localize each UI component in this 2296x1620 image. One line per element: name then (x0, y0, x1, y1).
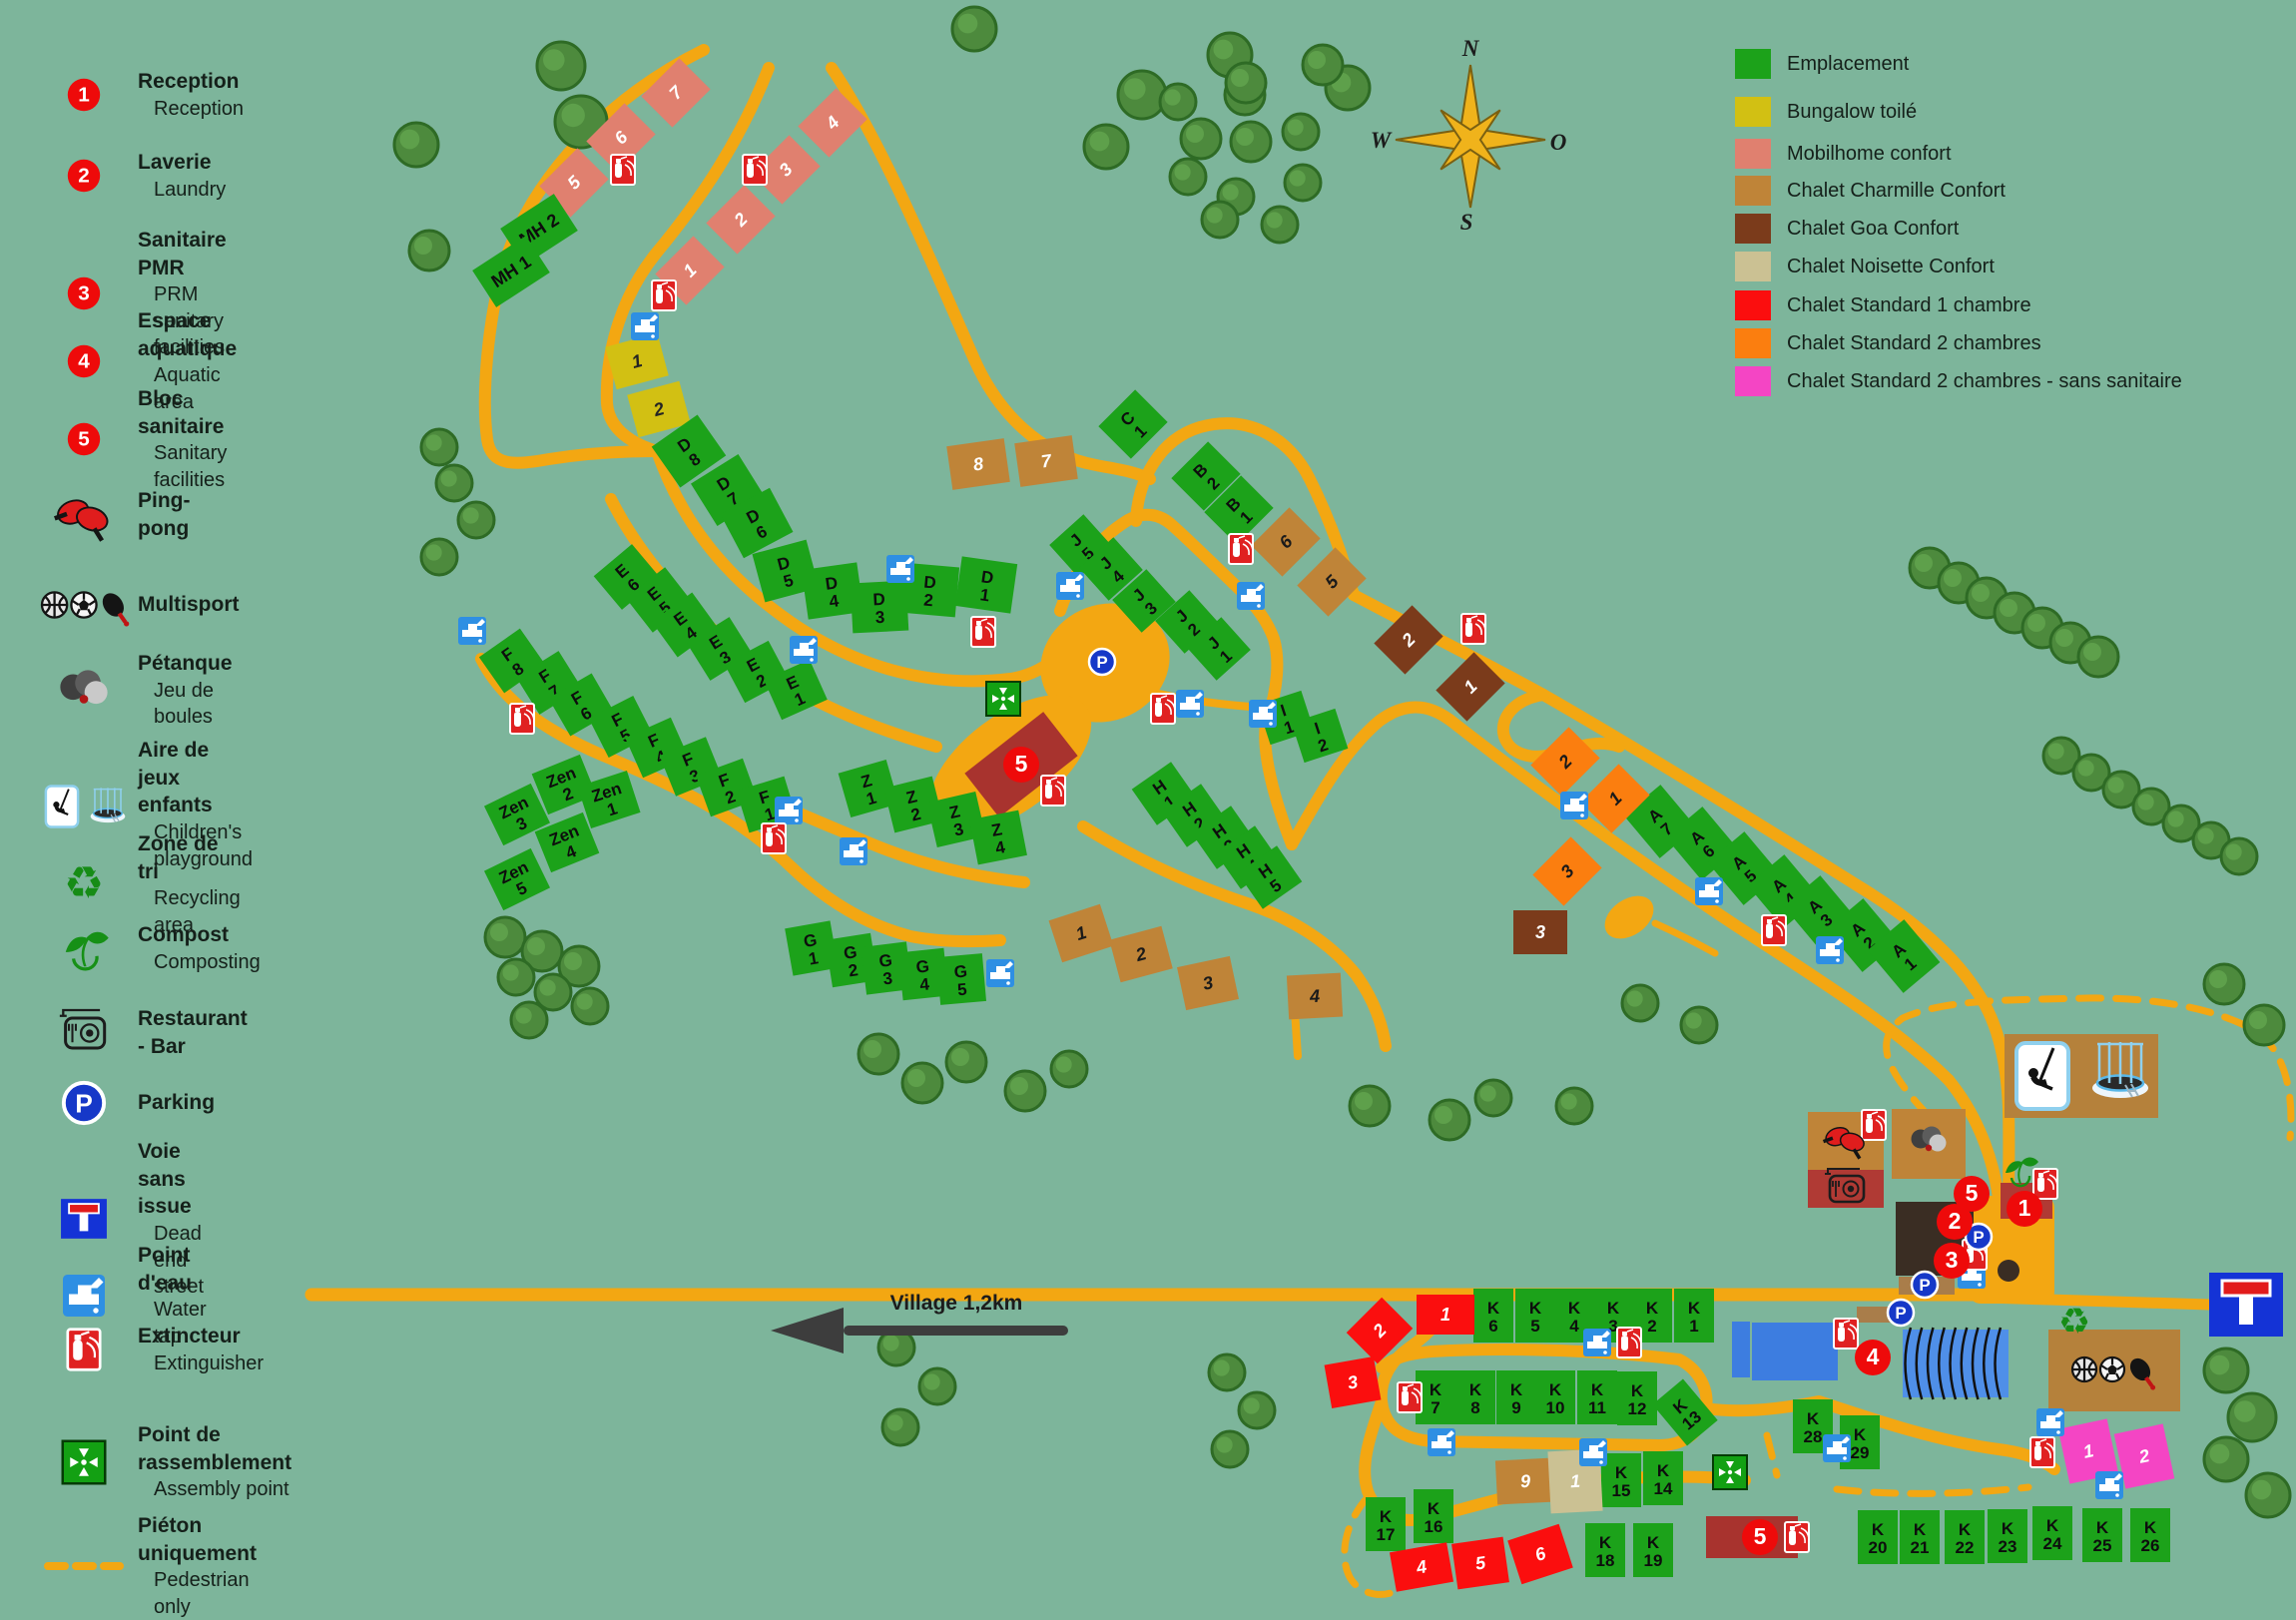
swing-icon (2016, 1043, 2068, 1109)
legend-title: Restaurant - Bar (138, 1007, 248, 1058)
playground-icon (30, 776, 138, 833)
tree-highlight (1561, 1093, 1577, 1109)
watertap-icon (2036, 1408, 2064, 1436)
legend-item-chalet-standard-2-chambres-sans-sanitaire: Chalet Standard 2 chambres - sans sanita… (1735, 366, 2182, 396)
plot-K23: K23 (1988, 1509, 2027, 1563)
legend-subtitle: Laundry (138, 177, 226, 203)
tree-highlight (924, 1373, 940, 1389)
ext-icon (1398, 1382, 1422, 1412)
legend-title: Point de rassemblement (138, 1423, 291, 1474)
tree-highlight (2226, 843, 2242, 859)
legend-title: Zone de tri (138, 832, 219, 883)
plot-3: 3 (1325, 1356, 1382, 1408)
tree-highlight (1207, 207, 1223, 223)
circle-icon: 5 (1742, 1519, 1778, 1555)
ext-icon (1229, 534, 1253, 564)
plot-K18: K18 (1585, 1523, 1625, 1577)
ext-icon (1617, 1328, 1641, 1357)
legend-label: Emplacement (1787, 53, 1909, 76)
watertap-icon (886, 555, 914, 583)
tree-highlight (1244, 1397, 1260, 1413)
assembly-icon (1713, 1455, 1747, 1489)
deadend-icon (30, 1190, 138, 1248)
dashedline-icon (30, 1537, 138, 1595)
tree-highlight (1010, 1077, 1028, 1095)
ext-icon (971, 617, 995, 647)
tree-highlight (2249, 1011, 2267, 1029)
ext-icon (1862, 1110, 1886, 1140)
svg-text:5: 5 (78, 427, 90, 450)
svg-text:2: 2 (78, 164, 90, 187)
svg-text:1: 1 (1440, 1305, 1450, 1325)
tree-highlight (564, 952, 582, 970)
number-1-icon: 1 (30, 66, 138, 124)
plot-K8: K8 (1455, 1370, 1495, 1424)
legend-label: Chalet Standard 2 chambres (1787, 332, 2041, 355)
tree-highlight (543, 49, 565, 71)
number-2-icon: 2 (30, 147, 138, 205)
plot-K25: K25 (2082, 1508, 2122, 1562)
legend-item-ping-pong: Ping-pong (30, 486, 191, 544)
legend-item-mobilhome-confort: Mobilhome confort (1735, 139, 1952, 169)
color-swatch (1735, 214, 1771, 244)
ext-icon (1785, 1522, 1809, 1552)
ext-icon (2030, 1437, 2054, 1467)
tree-highlight (2108, 777, 2124, 793)
tree-highlight (907, 1069, 925, 1087)
svg-text:W: W (1371, 128, 1393, 153)
color-swatch (1735, 49, 1771, 79)
pingpong-icon (30, 486, 138, 544)
tree-highlight (2000, 599, 2017, 617)
tree-highlight (441, 470, 457, 486)
legend-item-p-tanque: PétanqueJeu de boules (30, 650, 233, 731)
legend-item-restaurant-bar: Restaurant - Bar (30, 1004, 248, 1062)
legend-item-parking: PParking (30, 1074, 215, 1132)
tree-highlight (863, 1040, 881, 1058)
plot-Z4: Z4 (969, 810, 1027, 865)
ext-icon (743, 155, 767, 185)
legend-item-pi-ton-uniquement: Piéton uniquementPedestrian only (30, 1512, 257, 1620)
tree-highlight (1944, 569, 1962, 587)
watertap-icon (1583, 1329, 1611, 1356)
legend-label: Chalet Standard 1 chambre (1787, 294, 2031, 317)
tree-highlight (1972, 584, 1990, 602)
pcircle-icon: P (1912, 1272, 1938, 1298)
tree-highlight (1686, 1012, 1702, 1028)
legend-title: Laverie (138, 151, 212, 174)
svg-text:O: O (1550, 130, 1567, 155)
tree-highlight (490, 923, 508, 941)
watertap-icon (1176, 690, 1204, 718)
tree-highlight (2078, 760, 2094, 776)
tree-highlight (2168, 810, 2184, 826)
watertap-icon (1695, 877, 1723, 905)
svg-text:P: P (1895, 1304, 1906, 1323)
plot-K19: K19 (1633, 1523, 1673, 1577)
plot-K22: K22 (1945, 1510, 1985, 1564)
plot-K20: K20 (1858, 1510, 1898, 1564)
tree-highlight (2198, 827, 2214, 843)
ext-icon (1762, 915, 1786, 945)
watertap-icon (1816, 936, 1844, 964)
tree-highlight (527, 937, 545, 955)
tree-highlight (577, 993, 593, 1009)
legend-title: Reception (138, 70, 240, 93)
plot-K9: K9 (1496, 1370, 1536, 1424)
tree-highlight (503, 964, 519, 980)
color-swatch (1735, 252, 1771, 281)
watertap-icon (631, 312, 659, 340)
legend-label: Mobilhome confort (1787, 143, 1952, 166)
svg-text:4: 4 (1308, 986, 1320, 1007)
legend-item-point-de-rassemblement: Point de rassemblementAssembly point (30, 1421, 291, 1503)
petanque-icon (30, 661, 138, 719)
dot-icon (1998, 1260, 2019, 1282)
svg-text:S: S (1460, 210, 1473, 235)
plot-K11: K11 (1577, 1370, 1617, 1424)
legend-subtitle: Composting (138, 949, 261, 975)
tree-highlight (516, 1007, 532, 1023)
circle-icon: 1 (2007, 1191, 2042, 1227)
campground-map: 7654321MH 2MH 112D8D7D6D5D4D3D2D1E6E5E4E… (0, 0, 2296, 1620)
plot-7: 7 (1014, 435, 1078, 487)
pcircle-icon: P (1089, 649, 1115, 675)
tree-highlight (1915, 554, 1933, 572)
number-4-icon: 4 (30, 332, 138, 390)
svg-text:3: 3 (1535, 922, 1545, 942)
legend-label: Bungalow toilé (1787, 101, 1917, 124)
tree-highlight (1175, 164, 1191, 180)
ext-icon (762, 823, 786, 853)
tree-highlight (400, 130, 420, 150)
tree-highlight (958, 14, 978, 34)
building (1752, 1323, 1838, 1380)
svg-text:1: 1 (2018, 1195, 2031, 1221)
watertap-icon (30, 1267, 138, 1325)
svg-text:3: 3 (1946, 1247, 1959, 1273)
legend-item-bungalow-toil: Bungalow toilé (1735, 97, 1917, 127)
watertap-icon (2095, 1471, 2123, 1499)
svg-text:P: P (1096, 653, 1107, 672)
assembly-icon (30, 1433, 138, 1491)
ext-icon (1041, 776, 1065, 806)
tree-highlight (1165, 89, 1181, 105)
plot-K16: K16 (1414, 1489, 1453, 1543)
legend-item-chalet-goa-confort: Chalet Goa Confort (1735, 214, 1959, 244)
watertap-icon (1237, 582, 1265, 610)
plot-K26: K26 (2130, 1508, 2170, 1562)
legend-title: Bloc sanitaire (138, 387, 224, 438)
tree-highlight (1480, 1085, 1496, 1101)
legend-item-multisport: Multisport (30, 576, 239, 634)
svg-text:N: N (1461, 36, 1480, 61)
plot-K10: K10 (1535, 1370, 1575, 1424)
svg-text:4: 4 (78, 349, 90, 372)
legend-subtitle: Jeu de boules (138, 678, 233, 731)
village-label: Village 1,2km (890, 1292, 1023, 1315)
ext-icon (30, 1321, 138, 1378)
watertap-icon (775, 797, 803, 824)
tree-highlight (1308, 51, 1326, 69)
circle-icon: 4 (1855, 1340, 1891, 1375)
tree-highlight (2234, 1400, 2256, 1422)
tree-highlight (540, 979, 556, 995)
tree-highlight (1090, 132, 1110, 152)
ext-icon (611, 155, 635, 185)
legend-item-chalet-noisette-confort: Chalet Noisette Confort (1735, 252, 1995, 281)
legend-subtitle: Pedestrian only (138, 1567, 257, 1620)
pcircle-icon: P (30, 1074, 138, 1132)
plot-K24: K24 (2032, 1506, 2072, 1560)
tree-highlight (887, 1414, 903, 1430)
tree-highlight (1223, 184, 1239, 200)
plot-K5: K5 (1515, 1289, 1555, 1343)
watertap-icon (1823, 1434, 1851, 1462)
tree-highlight (883, 1335, 899, 1350)
circle-icon: 3 (1934, 1243, 1970, 1279)
circle-icon: 5 (1003, 747, 1039, 783)
ext-icon (1834, 1319, 1858, 1349)
svg-text:5: 5 (1754, 1523, 1767, 1549)
watertap-icon (986, 959, 1014, 987)
pcircle-icon: P (1888, 1300, 1914, 1326)
tree-highlight (1217, 1436, 1233, 1452)
legend-item-chalet-standard-1-chambre: Chalet Standard 1 chambre (1735, 290, 2031, 320)
wave-pool (1903, 1328, 2009, 1399)
legend-title: Aire de jeux enfants (138, 739, 213, 816)
legend-title: Piéton uniquement (138, 1514, 257, 1565)
svg-text:♻: ♻ (64, 857, 104, 908)
watertap-icon (790, 636, 818, 664)
ext-icon (1461, 614, 1485, 644)
plot-K1: K1 (1674, 1289, 1714, 1343)
svg-text:P: P (1919, 1276, 1930, 1295)
tree-highlight (2210, 1444, 2230, 1464)
tree-highlight (426, 434, 442, 450)
plot-9: 9 (1495, 1458, 1555, 1505)
tree-highlight (1236, 128, 1254, 146)
svg-text:9: 9 (1519, 1471, 1530, 1491)
plot-K14: K14 (1643, 1451, 1683, 1505)
tree-highlight (2252, 1480, 2272, 1500)
plot-5: 5 (1451, 1537, 1509, 1590)
tree-highlight (1627, 990, 1643, 1006)
tree-highlight (1124, 78, 1146, 100)
tree-highlight (1231, 69, 1249, 87)
watertap-icon (1579, 1438, 1607, 1466)
plot-D1: D1 (955, 556, 1017, 613)
tree-highlight (951, 1048, 969, 1066)
watertap-icon (1560, 792, 1588, 819)
ext-icon (652, 280, 676, 310)
plot-8: 8 (946, 438, 1010, 490)
legend-title: Compost (138, 923, 229, 946)
plot-K21: K21 (1900, 1510, 1940, 1564)
legend-title: Multisport (138, 593, 239, 616)
watertap-icon (1249, 700, 1277, 728)
tree-highlight (463, 507, 479, 523)
color-swatch (1735, 139, 1771, 169)
svg-text:3: 3 (78, 282, 90, 305)
legend-title: Espace aquatique (138, 309, 237, 360)
svg-text:D3: D3 (872, 590, 886, 628)
tree-highlight (2138, 794, 2154, 810)
legend-subtitle: Reception (138, 96, 244, 122)
plot-1: 1 (1417, 1295, 1474, 1335)
legend-title: Parking (138, 1091, 215, 1114)
color-swatch (1735, 290, 1771, 320)
svg-text:5: 5 (1015, 751, 1028, 777)
svg-text:1: 1 (78, 83, 90, 106)
tree-highlight (1267, 212, 1283, 228)
tree-highlight (2055, 629, 2073, 647)
legend-subtitle: Assembly point (138, 1476, 291, 1502)
legend-label: Chalet Goa Confort (1787, 218, 1959, 241)
watertap-icon (1428, 1428, 1455, 1456)
tree-highlight (1435, 1106, 1452, 1124)
sporticons-icon (30, 576, 138, 634)
watertap-icon (458, 617, 486, 645)
plot-4: 4 (1287, 973, 1343, 1020)
plot-G5: G5 (936, 953, 986, 1005)
color-swatch (1735, 97, 1771, 127)
building (1732, 1322, 1750, 1377)
legend-item-reception: 1ReceptionReception (30, 66, 244, 124)
ext-icon (1151, 694, 1175, 724)
tree-highlight (1214, 40, 1234, 60)
tree-highlight (426, 544, 442, 560)
legend-title: Sanitaire PMR (138, 229, 227, 279)
plot-K6: K6 (1473, 1289, 1513, 1343)
tree-highlight (1186, 125, 1204, 143)
tree-highlight (562, 104, 585, 127)
recycle-icon: ♻ (2058, 1301, 2090, 1342)
svg-text:5: 5 (1966, 1180, 1979, 1206)
assembly-icon (986, 682, 1020, 716)
tree-highlight (1355, 1092, 1373, 1110)
tree-highlight (2083, 643, 2101, 661)
tree-highlight (1290, 170, 1306, 186)
ext-icon (510, 704, 534, 734)
legend-title: Voie sans issue (138, 1140, 192, 1218)
recycle-icon: ♻ (30, 855, 138, 913)
svg-text:1: 1 (1569, 1471, 1580, 1491)
tree-highlight (2048, 743, 2064, 759)
legend-item-laverie: 2LaverieLaundry (30, 147, 226, 205)
legend-item-bloc-sanitaire: 5Bloc sanitaireSanitary facilities (30, 385, 227, 493)
legend-title: Point d'eau (138, 1244, 192, 1295)
legend-label: Chalet Charmille Confort (1787, 180, 2006, 203)
plot-K17: K17 (1366, 1497, 1406, 1551)
legend-subtitle: Extinguisher (138, 1350, 264, 1376)
legend-item-emplacement: Emplacement (1735, 49, 1909, 79)
svg-text:P: P (75, 1088, 93, 1118)
legend-item-compost: CompostComposting (30, 919, 261, 977)
legend-item-chalet-charmille-confort: Chalet Charmille Confort (1735, 176, 2006, 206)
tree-highlight (2210, 1355, 2230, 1375)
tree-highlight (1288, 119, 1304, 135)
tree-highlight (1214, 1359, 1230, 1375)
legend-label: Chalet Standard 2 chambres - sans sanita… (1787, 370, 2182, 393)
legend-label: Chalet Noisette Confort (1787, 256, 1995, 278)
legend-title: Pétanque (138, 652, 233, 675)
legend-title: Extincteur (138, 1325, 241, 1348)
svg-text:2: 2 (1949, 1208, 1962, 1234)
svg-text:P: P (1973, 1228, 1984, 1247)
restaurant-icon (30, 1004, 138, 1062)
circle-icon: 2 (1937, 1204, 1973, 1240)
color-swatch (1735, 176, 1771, 206)
tree-highlight (2209, 970, 2227, 988)
tree-highlight (2027, 614, 2045, 632)
color-swatch (1735, 328, 1771, 358)
legend-title: Ping-pong (138, 489, 191, 540)
ext-icon (2033, 1169, 2057, 1199)
plot-K12: K12 (1617, 1371, 1657, 1425)
deadend-icon (2209, 1273, 2283, 1337)
compost-icon (30, 919, 138, 977)
legend-item-extincteur: ExtincteurExtinguisher (30, 1321, 264, 1378)
tree-highlight (414, 237, 432, 255)
legend-item-chalet-standard-2-chambres: Chalet Standard 2 chambres (1735, 328, 2041, 358)
number-5-icon: 5 (30, 410, 138, 468)
color-swatch (1735, 366, 1771, 396)
tree-highlight (1056, 1056, 1072, 1072)
plot-3: 3 (1513, 910, 1567, 954)
svg-text:♻: ♻ (2058, 1301, 2090, 1342)
watertap-icon (1056, 572, 1084, 600)
svg-text:4: 4 (1867, 1344, 1880, 1369)
watertap-icon (840, 837, 867, 865)
